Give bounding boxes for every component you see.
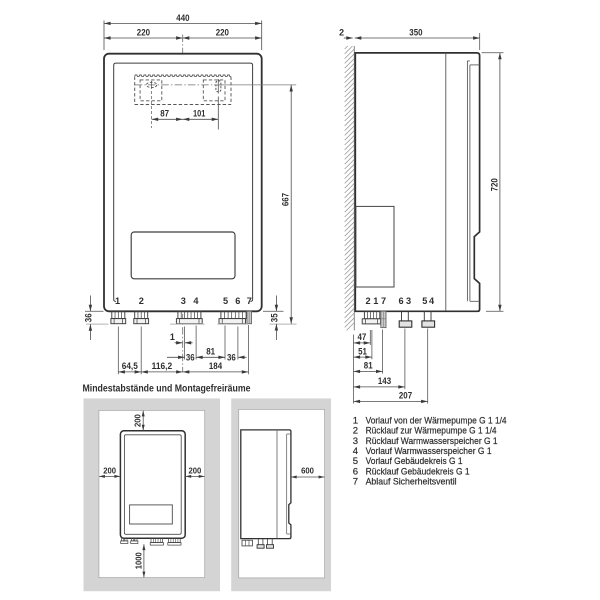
svg-text:720: 720 xyxy=(489,178,499,191)
svg-text:47: 47 xyxy=(358,332,367,342)
svg-text:4: 4 xyxy=(193,296,199,306)
svg-text:116,2: 116,2 xyxy=(152,361,173,371)
svg-text:81: 81 xyxy=(364,361,373,371)
svg-text:600: 600 xyxy=(301,466,314,476)
svg-text:Mindestabstände und Montagefre: Mindestabstände und Montagefreiräume xyxy=(83,383,252,394)
svg-text:350: 350 xyxy=(409,27,422,37)
svg-text:2: 2 xyxy=(139,296,144,306)
svg-text:1000: 1000 xyxy=(133,552,143,569)
svg-text:5: 5 xyxy=(223,296,228,306)
svg-text:87: 87 xyxy=(160,109,169,119)
svg-text:143: 143 xyxy=(378,376,391,386)
svg-text:2: 2 xyxy=(365,296,370,306)
svg-text:36: 36 xyxy=(186,352,195,362)
svg-text:220: 220 xyxy=(216,27,229,37)
svg-text:667: 667 xyxy=(281,193,291,206)
svg-text:6: 6 xyxy=(398,296,403,306)
svg-text:200: 200 xyxy=(189,465,202,475)
svg-text:35: 35 xyxy=(269,313,279,322)
svg-text:7: 7 xyxy=(381,296,386,306)
svg-text:3: 3 xyxy=(181,296,186,306)
svg-text:1: 1 xyxy=(170,332,175,342)
svg-text:36: 36 xyxy=(227,352,236,362)
svg-text:200: 200 xyxy=(103,465,116,475)
svg-text:220: 220 xyxy=(137,27,150,37)
svg-text:207: 207 xyxy=(399,391,412,401)
svg-text:3: 3 xyxy=(406,296,411,306)
svg-text:7: 7 xyxy=(247,296,252,306)
svg-text:64,5: 64,5 xyxy=(122,361,138,371)
svg-text:4: 4 xyxy=(429,296,435,306)
svg-text:6: 6 xyxy=(235,296,240,306)
svg-text:101: 101 xyxy=(193,109,205,119)
svg-text:1: 1 xyxy=(115,296,120,306)
svg-text:Ablauf Sicherheitsventil: Ablauf Sicherheitsventil xyxy=(366,477,457,488)
svg-text:184: 184 xyxy=(209,361,222,371)
svg-text:200: 200 xyxy=(133,414,143,427)
svg-text:440: 440 xyxy=(176,13,189,23)
svg-text:1: 1 xyxy=(373,296,378,306)
svg-text:2: 2 xyxy=(339,27,344,37)
svg-text:7: 7 xyxy=(353,477,358,488)
svg-text:5: 5 xyxy=(422,296,427,306)
svg-text:36: 36 xyxy=(83,313,93,322)
svg-text:81: 81 xyxy=(206,346,215,356)
svg-text:51: 51 xyxy=(358,346,367,356)
